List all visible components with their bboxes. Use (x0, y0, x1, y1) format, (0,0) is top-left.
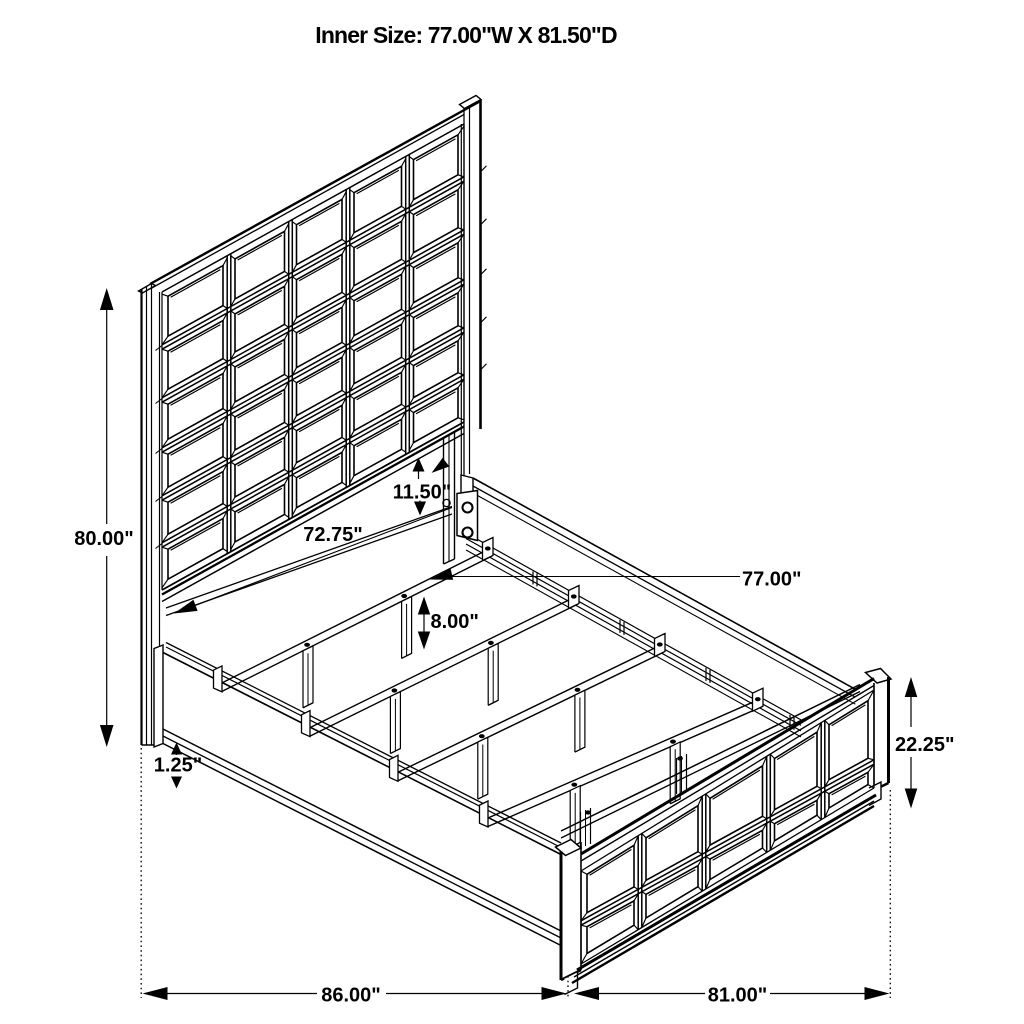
svg-text:8.00": 8.00" (431, 611, 479, 633)
svg-text:81.00": 81.00" (708, 985, 768, 1007)
svg-text:80.00": 80.00" (74, 528, 134, 550)
svg-text:86.00": 86.00" (321, 985, 381, 1007)
svg-text:72.75": 72.75" (303, 524, 363, 546)
svg-text:Inner Size: 77.00"W X 81.50"D: Inner Size: 77.00"W X 81.50"D (315, 22, 617, 48)
svg-text:77.00": 77.00" (742, 569, 802, 591)
svg-text:11.50": 11.50" (393, 482, 451, 504)
svg-text:22.25": 22.25" (895, 734, 955, 756)
svg-text:1.25": 1.25" (154, 755, 202, 777)
